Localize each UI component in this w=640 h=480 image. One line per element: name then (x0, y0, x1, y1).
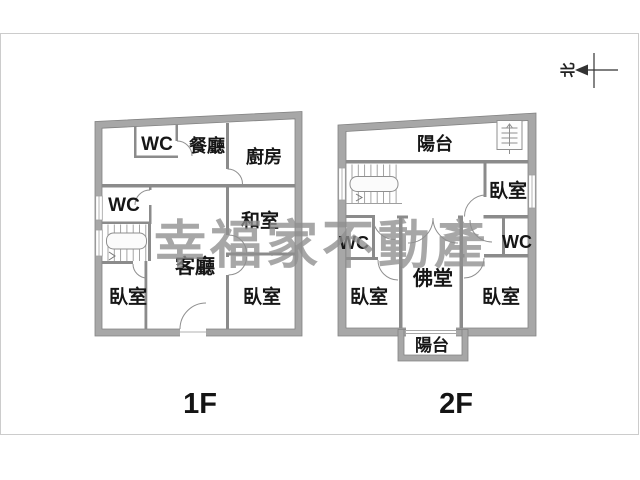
floorplan-image: 北 (0, 0, 640, 480)
floor1-name-label: 1F (183, 388, 217, 420)
f2-staircase (346, 165, 402, 204)
f1-label-bedroom-right: 臥室 (243, 285, 281, 308)
f1-label-wc-top: WC (141, 134, 173, 155)
north-arrow (575, 53, 618, 88)
agency-watermark: 幸福家不動產 (154, 217, 490, 275)
f1-label-kitchen: 廚房 (246, 146, 282, 167)
f1-label-dining: 餐廳 (188, 135, 225, 156)
f2-stair-direction-arrow (356, 194, 362, 201)
floor2-name-label: 2F (439, 388, 473, 420)
f2-label-bedroom-right: 臥室 (482, 285, 520, 308)
f2-label-balcony-bottom: 陽台 (415, 335, 449, 355)
f2-label-bedroom-top: 臥室 (489, 179, 527, 202)
f1-label-bedroom-left: 臥室 (109, 285, 147, 308)
f2-stair-railing (350, 177, 398, 192)
f2-label-bedroom-left: 臥室 (350, 285, 388, 308)
floorplan-canvas: 北 (0, 0, 640, 480)
f1-label-wc-mid: WC (108, 195, 140, 216)
f2-label-wc-right: WC (502, 232, 532, 252)
f1-staircase (107, 225, 147, 262)
north-label: 北 (560, 62, 577, 77)
f2-label-balcony-top: 陽台 (417, 133, 453, 154)
f2-roof-ladder (497, 121, 522, 155)
f1-stair-railing (107, 233, 147, 249)
